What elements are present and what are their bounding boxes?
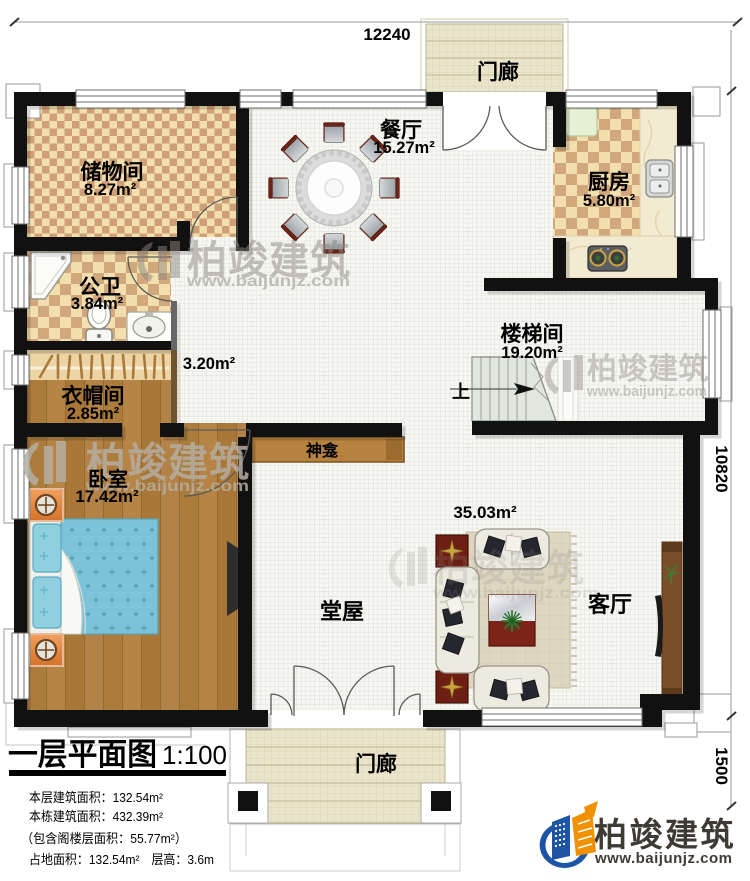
svg-text:厨房: 厨房: [588, 170, 630, 194]
svg-text:1:100: 1:100: [162, 740, 227, 770]
svg-text:17.42m²: 17.42m²: [75, 487, 139, 506]
svg-text:10820: 10820: [712, 445, 731, 492]
svg-text:www.baijunjz.com: www.baijunjz.com: [586, 384, 707, 400]
svg-text:本栋建筑面积：432.39m²: 本栋建筑面积：432.39m²: [29, 809, 164, 824]
svg-text:柏竣建筑: 柏竣建筑: [587, 352, 709, 386]
svg-text:门廊: 门廊: [477, 60, 519, 84]
svg-text:柏竣建筑: 柏竣建筑: [433, 547, 585, 589]
svg-text:www.baijunjz.com: www.baijunjz.com: [594, 850, 732, 867]
svg-text:www.baijunjz.com: www.baijunjz.com: [186, 273, 350, 290]
svg-text:本层建筑面积：132.54m²: 本层建筑面积：132.54m²: [29, 790, 164, 805]
svg-text:楼梯间: 楼梯间: [501, 322, 564, 346]
svg-text:客厅: 客厅: [588, 592, 632, 617]
svg-text:（包含阁楼层面积：55.77m²）: （包含阁楼层面积：55.77m²）: [21, 831, 187, 846]
svg-text:15.27m²: 15.27m²: [373, 139, 435, 157]
svg-text:3.84m²: 3.84m²: [71, 295, 124, 313]
svg-text:神龛: 神龛: [306, 441, 339, 460]
svg-text:5.80m²: 5.80m²: [583, 192, 636, 210]
svg-text:8.27m²: 8.27m²: [84, 181, 137, 199]
svg-text:3.20m²: 3.20m²: [183, 355, 236, 373]
svg-text:1500: 1500: [712, 747, 731, 785]
svg-text:19.20m²: 19.20m²: [501, 344, 563, 362]
svg-text:一层平面图: 一层平面图: [8, 737, 157, 772]
svg-text:柏竣建筑: 柏竣建筑: [594, 816, 736, 853]
svg-text:35.03m²: 35.03m²: [453, 503, 517, 522]
svg-text:门廊: 门廊: [355, 752, 397, 776]
svg-text:上: 上: [452, 382, 470, 402]
svg-text:2.85m²: 2.85m²: [67, 405, 120, 423]
svg-text:占地面积：132.54m² 层高：3.6m: 占地面积：132.54m² 层高：3.6m: [29, 852, 214, 867]
svg-text:www.baijunjz.com: www.baijunjz.com: [432, 585, 599, 602]
svg-text:12240: 12240: [363, 25, 410, 44]
svg-text:堂屋: 堂屋: [320, 599, 364, 624]
